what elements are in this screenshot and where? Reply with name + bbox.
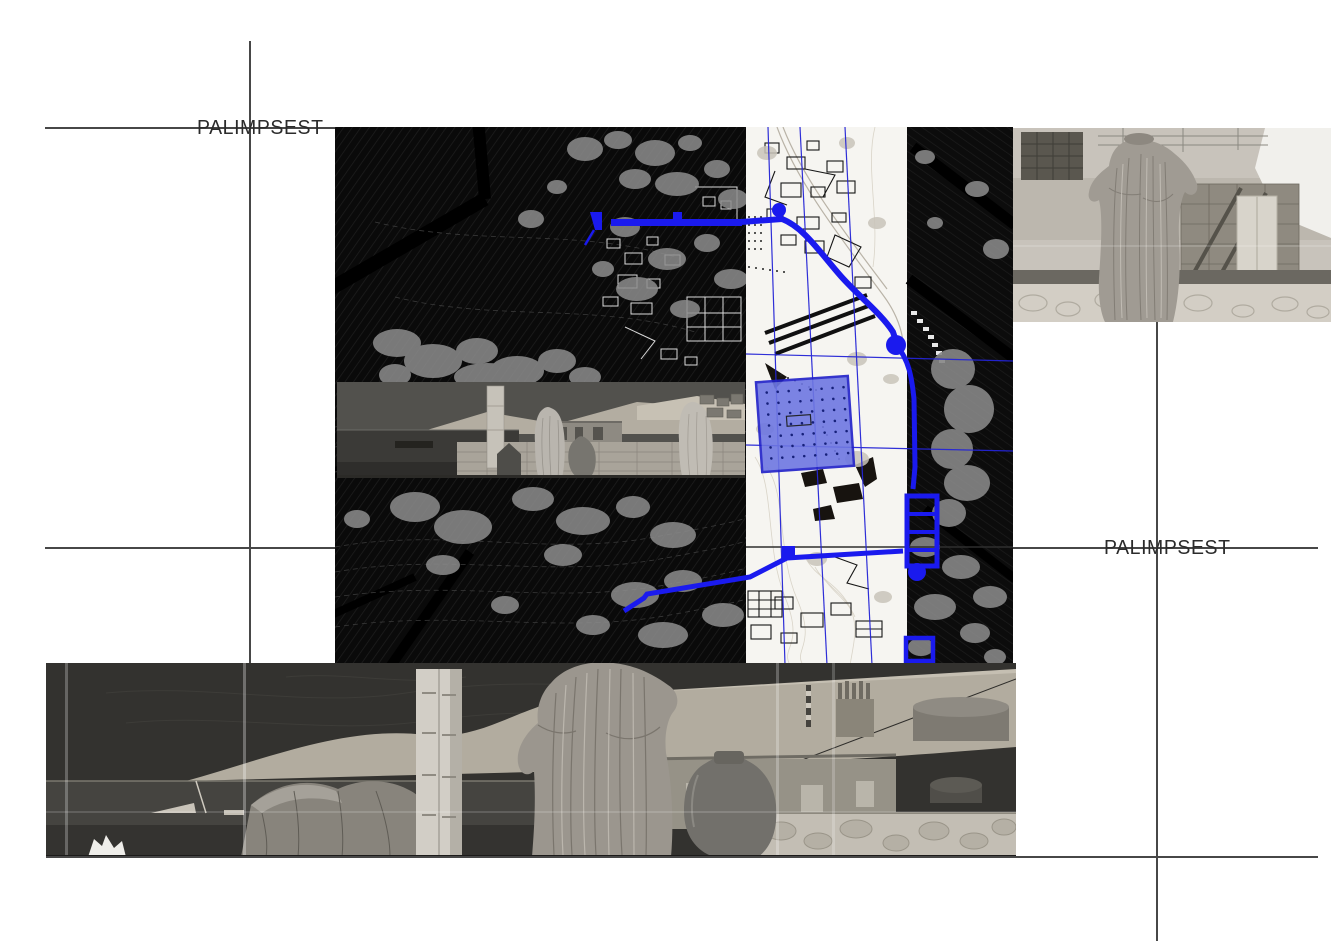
title-palimpsest-right: PALIMPSEST <box>1104 536 1231 560</box>
statue-photo-inverted-top-right <box>1013 128 1331 322</box>
tall-pillar <box>416 669 462 857</box>
excavation-square-overlay <box>756 376 854 472</box>
harbor-panorama-inverted-photo <box>337 382 745 478</box>
crop-line-bottom-horizontal <box>46 856 1318 858</box>
crop-line-right-vertical <box>1156 322 1158 941</box>
stone-wall <box>758 813 1016 857</box>
foreground-rocks <box>241 781 432 857</box>
dark-map-panel-right <box>907 127 1013 665</box>
crop-line-middle-left <box>45 547 336 549</box>
palimpsest-collage-board: PALIMPSEST PALIMPSEST <box>0 0 1331 945</box>
coast-panorama-inverted-photo <box>46 663 1016 857</box>
title-palimpsest-left: PALIMPSEST <box>197 116 324 140</box>
